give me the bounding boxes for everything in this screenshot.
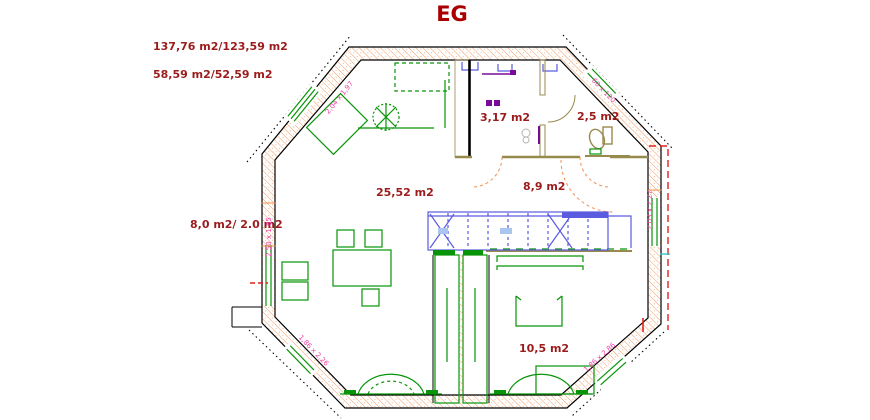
wc-fixtures [585,127,630,156]
bay-foot [344,390,356,394]
door-arc-utility [472,157,502,187]
floor-plan-canvas: EG 137,76 m2/123,59 m2 58,59 m2/52,59 m2… [0,0,870,420]
bedroom-furniture [497,256,583,326]
utility-room-west-wall [455,60,469,157]
wc-vent [590,149,601,154]
dining-table [333,250,391,286]
drain-symbol [522,129,530,137]
top-wall-window-symbols [462,62,557,71]
kitchen-label: 8,9 m2 [523,180,565,193]
dim-right: 2,03 x 2,27 [646,190,654,230]
bay-foot [426,390,438,394]
bay-foot [494,390,506,394]
secondary-area-label: 58,59 m2/52,59 m2 [153,68,273,81]
kitchen-appliance [438,228,448,234]
door-arc-wc [548,95,575,122]
armchair [282,282,308,300]
door-arc-corridor [580,157,610,187]
drain-symbol [523,137,529,143]
sideboard [497,266,583,270]
bay-window-left [340,374,442,394]
armchair [282,262,308,280]
toilet-bowl [587,127,607,151]
stair-gap-hatch [459,255,463,403]
total-area-label: 137,76 m2/123,59 m2 [153,40,288,53]
utility-room-label: 3,17 m2 [480,111,530,124]
plant [373,103,399,131]
sideboard [497,256,583,262]
cabinet-dashed [395,63,449,91]
window-symbol [498,64,512,71]
utility-fixture [510,70,516,75]
kitchen-counter-return [608,216,631,248]
utility-wc-partition-lower [540,125,545,157]
bay-arc-inner [368,381,414,394]
chair [337,230,354,247]
seat-corner [557,296,562,300]
stair-landing-edge [463,250,483,255]
bay-arc [508,374,574,394]
wc-label: 2,5 m2 [577,110,619,123]
living-room-label: 25,52 m2 [376,186,434,199]
dryer-icon [494,100,500,106]
washer-icon [486,100,492,106]
bay-arc [358,374,424,394]
balcony-left [232,307,262,327]
chair [365,230,382,247]
chair [362,289,379,306]
bedroom-label: 10,5 m2 [519,342,569,355]
bay-foot [576,390,588,394]
kitchen-wall-cabinet [562,212,608,218]
floor-plan-page: EG 137,76 m2/123,59 m2 58,59 m2/52,59 m2… [0,0,870,420]
kitchen-appliance [500,228,512,234]
plan-title: EG [436,2,468,26]
dim-left: 2,50 x 1,85 [265,217,273,257]
seat-u-shape [516,296,562,326]
door-arc-living [561,160,613,212]
staircase [433,250,489,403]
kitchen-cabinet-dividers [448,213,588,249]
kitchen-unit [428,212,631,250]
seat-corner [516,296,521,300]
stair-landing-edge [433,250,455,255]
utility-room-fixtures [482,70,530,143]
